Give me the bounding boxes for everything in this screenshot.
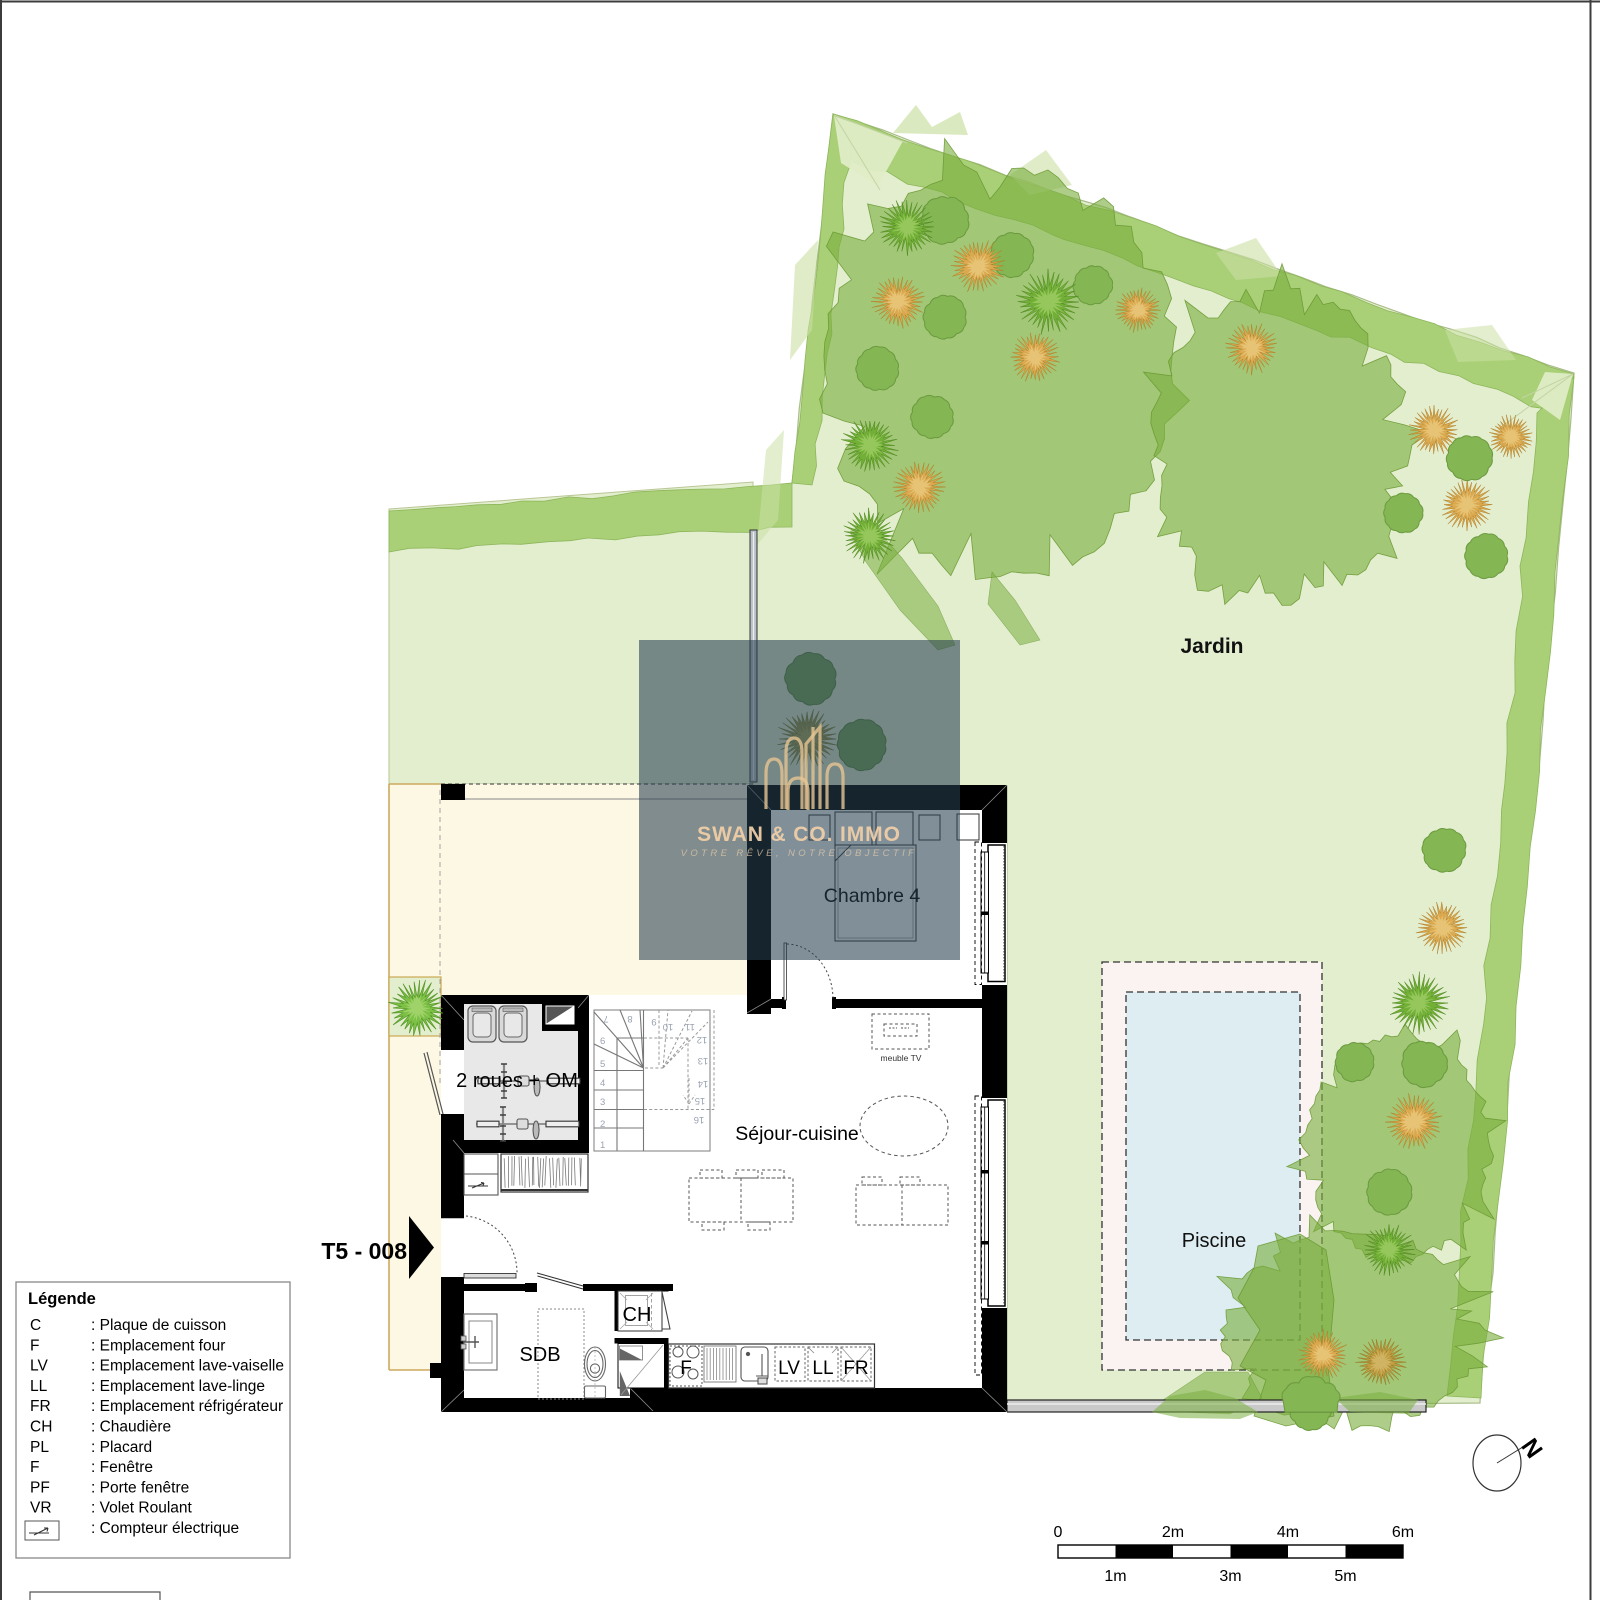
svg-text:1m: 1m bbox=[1104, 1568, 1126, 1585]
svg-text:16: 16 bbox=[694, 1114, 705, 1125]
svg-text:1: 1 bbox=[600, 1140, 605, 1151]
svg-text:12: 12 bbox=[697, 1034, 708, 1045]
svg-text:LV: LV bbox=[30, 1358, 48, 1375]
svg-text:5m: 5m bbox=[1334, 1568, 1356, 1585]
svg-text:F: F bbox=[30, 1459, 39, 1476]
svg-text:SDB: SDB bbox=[519, 1344, 560, 1366]
svg-text:meuble TV: meuble TV bbox=[881, 1053, 922, 1063]
svg-text:VOTRE RÊVE, NOTRE OBJECTIF: VOTRE RÊVE, NOTRE OBJECTIF bbox=[681, 848, 918, 859]
svg-text:Séjour-cuisine: Séjour-cuisine bbox=[735, 1123, 859, 1145]
svg-text:11: 11 bbox=[685, 1021, 695, 1032]
svg-text:LL: LL bbox=[30, 1378, 48, 1395]
svg-text:LL: LL bbox=[812, 1358, 833, 1379]
svg-text:PL: PL bbox=[30, 1439, 49, 1456]
svg-text:: Compteur électrique: : Compteur électrique bbox=[91, 1520, 239, 1537]
svg-text:Légende: Légende bbox=[28, 1290, 96, 1308]
svg-text:13: 13 bbox=[698, 1055, 709, 1066]
svg-text:2: 2 bbox=[600, 1119, 605, 1130]
svg-text:2 roues + OM: 2 roues + OM bbox=[456, 1070, 578, 1092]
svg-text:9: 9 bbox=[651, 1016, 656, 1027]
svg-text:14: 14 bbox=[698, 1078, 709, 1089]
svg-text:0: 0 bbox=[1054, 1524, 1063, 1541]
svg-text:: Emplacement four: : Emplacement four bbox=[91, 1337, 225, 1354]
svg-text:Piscine: Piscine bbox=[1182, 1230, 1246, 1252]
svg-text:3m: 3m bbox=[1219, 1568, 1241, 1585]
svg-text:: Volet Roulant: : Volet Roulant bbox=[91, 1500, 193, 1517]
svg-text:: Chaudière: : Chaudière bbox=[91, 1419, 171, 1436]
svg-text:CH: CH bbox=[623, 1304, 652, 1326]
svg-text:: Fenêtre: : Fenêtre bbox=[91, 1459, 153, 1476]
svg-text:6m: 6m bbox=[1392, 1524, 1414, 1541]
svg-text:6: 6 bbox=[600, 1036, 605, 1047]
svg-text:3: 3 bbox=[600, 1097, 605, 1108]
svg-text:FR: FR bbox=[843, 1358, 868, 1379]
svg-text:8: 8 bbox=[627, 1013, 632, 1024]
svg-text:10: 10 bbox=[663, 1021, 674, 1032]
svg-text:LV: LV bbox=[778, 1358, 800, 1379]
svg-text:2m: 2m bbox=[1162, 1524, 1184, 1541]
svg-text:5: 5 bbox=[600, 1059, 605, 1070]
svg-text:: Porte fenêtre: : Porte fenêtre bbox=[91, 1479, 189, 1496]
svg-text:F: F bbox=[680, 1358, 692, 1379]
svg-text:: Plaque de cuisson: : Plaque de cuisson bbox=[91, 1317, 226, 1334]
svg-text:VR: VR bbox=[30, 1500, 52, 1517]
svg-text:: Emplacement lave-vaiselle: : Emplacement lave-vaiselle bbox=[91, 1358, 284, 1375]
svg-text:: Placard: : Placard bbox=[91, 1439, 152, 1456]
svg-text:PF: PF bbox=[30, 1479, 50, 1496]
svg-text:SWAN & CO. IMMO: SWAN & CO. IMMO bbox=[697, 823, 901, 846]
svg-text:FR: FR bbox=[30, 1398, 51, 1415]
svg-text:Jardin: Jardin bbox=[1180, 635, 1243, 658]
svg-text:: Emplacement lave-linge: : Emplacement lave-linge bbox=[91, 1378, 265, 1395]
svg-text:7: 7 bbox=[603, 1013, 608, 1024]
svg-text:CH: CH bbox=[30, 1419, 52, 1436]
svg-text:4m: 4m bbox=[1277, 1524, 1299, 1541]
svg-text:T5 - 008: T5 - 008 bbox=[321, 1238, 407, 1264]
svg-text:15: 15 bbox=[695, 1095, 706, 1106]
svg-text:F: F bbox=[30, 1337, 39, 1354]
svg-text:C: C bbox=[30, 1317, 41, 1334]
svg-text:: Emplacement réfrigérateur: : Emplacement réfrigérateur bbox=[91, 1398, 283, 1415]
svg-text:4: 4 bbox=[600, 1078, 605, 1089]
